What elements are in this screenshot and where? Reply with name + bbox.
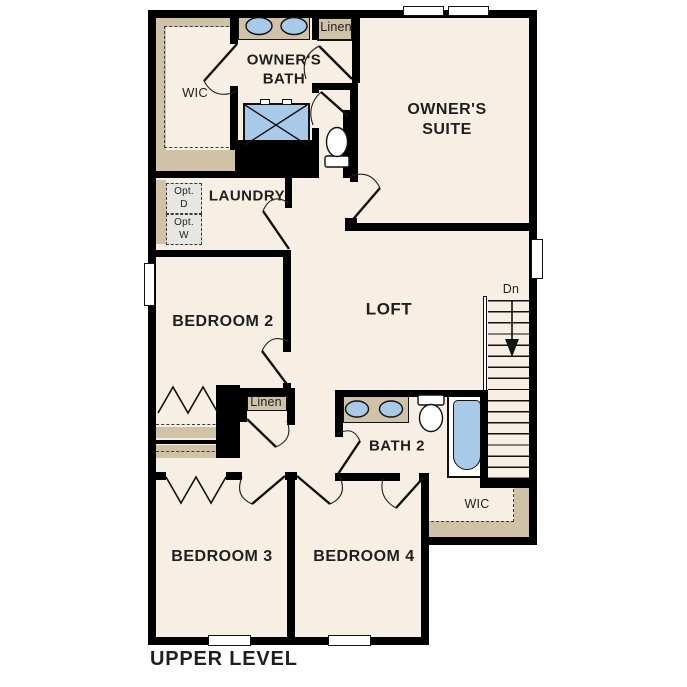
stairs-down-arrow-icon [505, 339, 519, 357]
closet-label-linen-top: Linen [320, 20, 352, 36]
label-stairs-down: Dn [503, 282, 519, 298]
door-leaf [263, 211, 289, 249]
closet-label-bedroom4-wic: WIC [465, 497, 490, 513]
toilet-icon [327, 128, 348, 157]
door-leaf [338, 441, 360, 474]
door-leaf [349, 188, 380, 224]
door-swing-arc [338, 431, 360, 441]
door-swing-arc [382, 478, 396, 508]
room-label-bedroom2: BEDROOM 2 [158, 312, 288, 332]
room-label-loft: LOFT [366, 298, 412, 319]
floor-plan: OWNER'S BATH OWNER'S SUITE WIC Linen LAU… [0, 0, 687, 687]
door-swing-arc [276, 421, 289, 447]
closet-label-linen-hall: Linen [250, 395, 282, 411]
room-label-bedroom3: BEDROOM 3 [157, 547, 287, 567]
door-leaf [297, 476, 330, 504]
door-swing-arc [330, 477, 342, 504]
label-optional-washer: Opt. W [174, 216, 194, 242]
sink-icon [281, 18, 307, 35]
door-swing-arc [349, 174, 380, 188]
door-leaf [321, 92, 348, 116]
door-swing-arc [240, 477, 252, 504]
room-label-owners-wic: WIC [182, 85, 208, 101]
door-swing-arc [311, 92, 321, 125]
room-label-owners-suite: OWNER'S SUITE [392, 100, 502, 140]
door-leaf [204, 44, 237, 81]
sink-icon [246, 18, 272, 35]
door-leaf [262, 351, 289, 387]
bifold-door [166, 477, 226, 503]
symbols-overlay [0, 0, 687, 687]
sink-icon [380, 401, 403, 417]
room-label-laundry: LAUNDRY [209, 188, 285, 207]
label-optional-dryer: Opt. D [174, 185, 194, 211]
room-label-bath2: BATH 2 [369, 438, 425, 457]
door-leaf [252, 476, 285, 504]
plan-title: UPPER LEVEL [150, 648, 298, 671]
door-swing-arc [204, 81, 237, 94]
sink-icon [346, 401, 369, 417]
door-leaf [247, 419, 276, 447]
toilet-icon [325, 156, 349, 167]
door-leaf [396, 478, 423, 508]
room-label-bedroom4: BEDROOM 4 [299, 547, 429, 567]
door-swing-arc [262, 339, 289, 351]
toilet-icon [420, 405, 443, 432]
room-label-owners-bath: OWNER'S BATH [234, 51, 334, 89]
bifold-door [158, 387, 218, 413]
shower-glass-icon [245, 105, 307, 145]
door-swings [204, 46, 396, 508]
toilet-icon [418, 395, 444, 405]
